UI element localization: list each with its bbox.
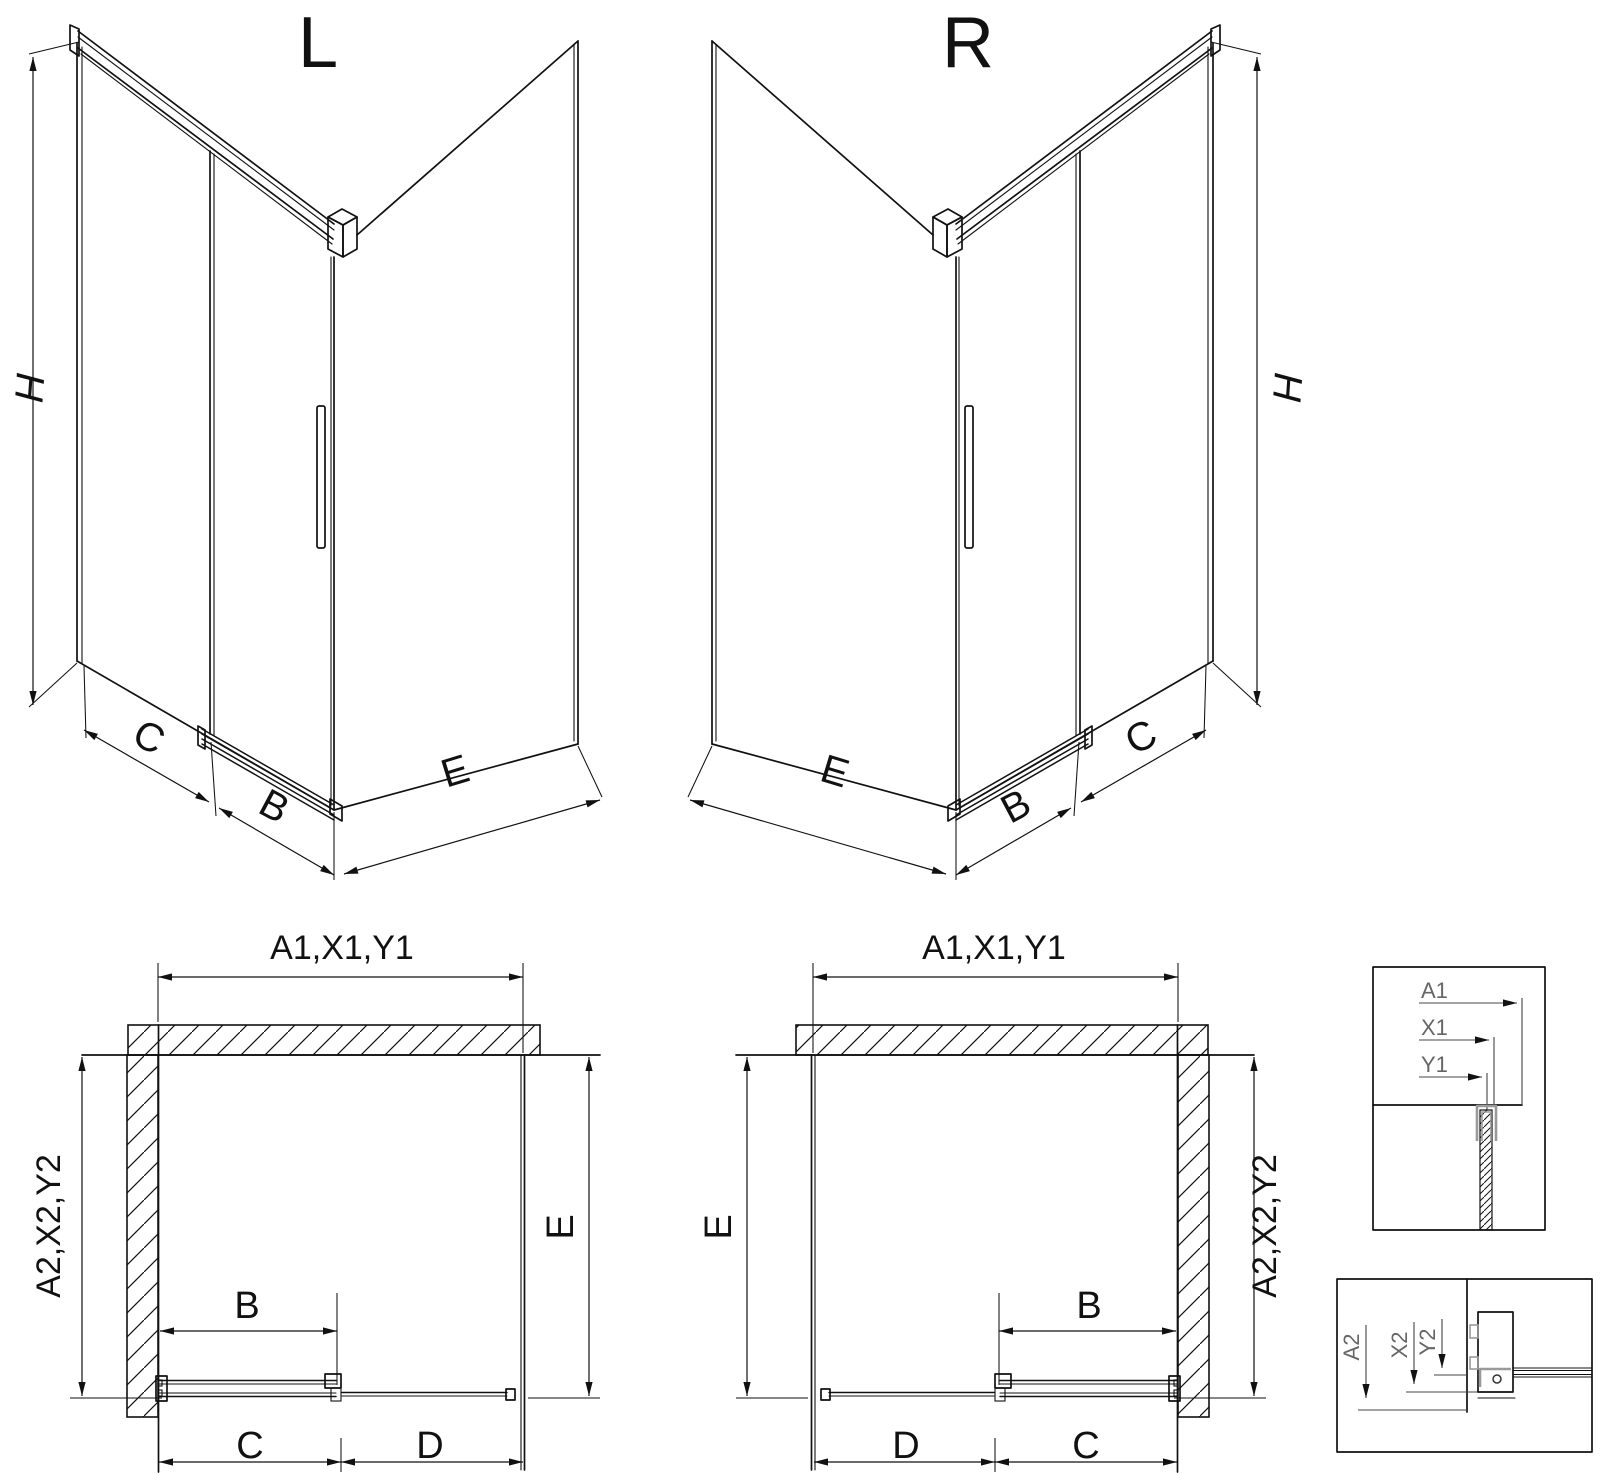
wall-top-plan-left — [128, 1025, 540, 1055]
dimension-e-plan-right: E — [698, 1057, 808, 1398]
label-b-left: B — [252, 781, 296, 832]
detail-label-a1: A1 — [1421, 978, 1448, 1003]
label-d-plan-left: D — [416, 1425, 443, 1467]
corner-cap-right-view — [933, 209, 962, 257]
door-profile-section — [1470, 1312, 1515, 1398]
wall-side-plan-right — [1178, 1055, 1209, 1417]
fixed-glass-plan-right — [821, 1389, 994, 1400]
track-section-lines — [1513, 1368, 1592, 1377]
detail-label-a2: A2 — [1339, 1334, 1364, 1361]
dimension-e-plan-left: E — [528, 1057, 600, 1398]
label-e-left: E — [436, 747, 474, 797]
dimension-b-plan-right: B — [999, 1285, 1176, 1385]
label-c-right: C — [1118, 711, 1164, 763]
label-a2-plan-left: A2,X2,Y2 — [30, 1154, 68, 1298]
detail-view-bottom: A2 X2 Y2 — [1337, 1279, 1592, 1452]
dimension-cd-plan-right: D C — [814, 1425, 1177, 1472]
label-d-plan-right: D — [892, 1425, 919, 1467]
label-a1-plan-right: A1,X1,Y1 — [922, 929, 1066, 967]
shower-enclosure-diagram: L — [0, 0, 1600, 1474]
wall-top-plan-right — [796, 1025, 1208, 1055]
dimension-h-right-view: H — [1211, 42, 1310, 707]
dimension-cbe-left-view: C B E — [84, 666, 602, 880]
door-handle-right-view — [965, 406, 973, 548]
view-title-left: L — [298, 3, 338, 83]
corner-cap-left-view — [328, 209, 357, 257]
glass-panels-left-view — [77, 41, 578, 810]
label-c-plan-right: C — [1072, 1425, 1099, 1467]
view-title-right: R — [942, 3, 994, 83]
detail-view-top: A1 X1 Y1 — [1373, 967, 1545, 1230]
fixed-glass-plan-left — [342, 1389, 515, 1400]
detail-label-x2: X2 — [1387, 1332, 1412, 1359]
label-h-left: H — [6, 371, 52, 403]
dimension-cd-plan-left: C D — [159, 1425, 523, 1472]
plan-view-left: A1,X1,Y1 A2,X2,Y2 E B — [30, 929, 600, 1472]
label-a1-plan-left: A1,X1,Y1 — [270, 929, 414, 967]
label-c-left: C — [126, 711, 172, 763]
label-e-right: E — [816, 747, 854, 797]
technical-drawing-sheet: L — [0, 0, 1600, 1474]
top-rail-right-view — [956, 25, 1220, 244]
label-a2-plan-right: A2,X2,Y2 — [1246, 1154, 1284, 1298]
detail-label-y2: Y2 — [1415, 1329, 1440, 1356]
detail-label-y1: Y1 — [1421, 1052, 1448, 1077]
label-b-right: B — [994, 781, 1038, 832]
door-handle-left-view — [317, 406, 325, 548]
label-e-plan-right: E — [698, 1214, 740, 1239]
label-b-plan-right: B — [1076, 1285, 1101, 1327]
sliding-door-plan-left — [156, 1374, 341, 1401]
sliding-door-plan-right — [995, 1374, 1180, 1401]
label-b-plan-left: B — [234, 1285, 259, 1327]
top-rail-left-view — [70, 25, 334, 244]
dimension-b-plan-left: B — [160, 1285, 337, 1385]
dimension-cbe-right-view: C B E — [688, 666, 1206, 880]
label-c-plan-left: C — [236, 1425, 263, 1467]
label-e-plan-left: E — [540, 1214, 582, 1239]
detail-label-x1: X1 — [1421, 1015, 1448, 1040]
glass-panels-right-view — [712, 41, 1213, 810]
plan-view-right: A1,X1,Y1 A2,X2,Y2 E B — [698, 929, 1284, 1472]
wall-side-plan-left — [127, 1055, 158, 1417]
iso-view-right: R — [688, 3, 1310, 880]
label-h-right: H — [1264, 371, 1310, 403]
dimension-h-left-view: H — [6, 42, 79, 707]
iso-view-left: L — [6, 3, 602, 880]
